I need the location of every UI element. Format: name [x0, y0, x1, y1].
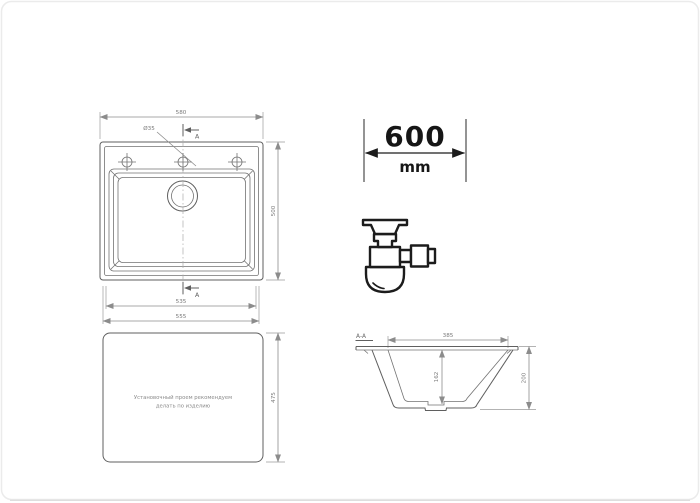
dim-outer-bottom-width: 555	[103, 286, 259, 324]
section-marker-bottom: A	[183, 282, 200, 299]
dim-section-top-width: 385	[388, 333, 508, 348]
dim-top-width: 580	[100, 110, 263, 139]
siphon-cup	[366, 267, 404, 292]
dim-bottom-view-height: 475	[266, 333, 285, 462]
bowl-outer-line	[109, 169, 255, 271]
cabinet-width-value: 600	[384, 120, 445, 153]
installation-note-line1: Установочный проем рекомендуем	[134, 394, 232, 401]
section-title: А-А	[356, 334, 366, 340]
bottom-view-height-label: 475	[271, 392, 277, 403]
hole-diameter-label: Ø35	[143, 125, 155, 132]
siphon-body	[370, 247, 400, 267]
faucet-hole-left	[118, 153, 136, 171]
bowl-inner-profile	[388, 350, 508, 405]
siphon-funnel	[363, 220, 407, 234]
dim-inner-bottom-width: 535	[106, 286, 256, 309]
bowl-depth-label: 162	[434, 372, 440, 383]
sink-top-view: Ø35 580 A 500 A	[100, 110, 285, 324]
sink-technical-drawing: Ø35 580 A 500 A	[0, 0, 700, 503]
bowl-corner-ticks	[111, 171, 253, 269]
dim-overall-height: 200	[480, 347, 536, 410]
siphon-pipe-outlet	[428, 249, 435, 263]
installation-note-line2: делать по изделию	[156, 404, 211, 410]
overall-height-label: 200	[522, 372, 528, 383]
faucet-hole-center	[174, 153, 192, 171]
dim-side-height: 500	[266, 142, 285, 280]
page-frame	[2, 2, 699, 500]
outer-bottom-width-label: 555	[176, 314, 187, 320]
faucet-hole-marks	[118, 153, 246, 171]
drain-hole-outer	[168, 181, 198, 211]
section-marker-top: A	[183, 124, 200, 141]
section-view: А-А 385 162 2	[356, 333, 537, 411]
inner-bottom-width-label: 535	[176, 299, 187, 305]
section-top-width-label: 385	[443, 333, 454, 339]
siphon-neck-nut	[374, 234, 396, 247]
section-letter-top: A	[195, 134, 200, 141]
siphon-pipe-coupling	[411, 246, 428, 267]
drawing-canvas: Ø35 580 A 500 A	[0, 0, 700, 503]
sink-bottom-view: Установочный проем рекомендуем делать по…	[103, 333, 285, 462]
dim-bowl-depth: 162	[434, 350, 442, 404]
bowl-outer-profile	[372, 350, 513, 411]
siphon-trap-icon	[363, 220, 435, 292]
bowl-inner-line	[118, 178, 246, 263]
drain-hole-inner	[172, 185, 194, 207]
section-letter-bottom: A	[195, 292, 200, 299]
faucet-hole-right	[228, 153, 246, 171]
hole-diameter-leader	[157, 132, 196, 166]
side-height-label: 500	[271, 205, 277, 216]
cabinet-width-callout: 600 mm	[364, 119, 466, 182]
cabinet-width-unit: mm	[399, 158, 430, 176]
top-width-label: 580	[176, 110, 187, 116]
siphon-pipe-neck	[400, 250, 411, 262]
bowl-middle-line	[114, 173, 251, 267]
